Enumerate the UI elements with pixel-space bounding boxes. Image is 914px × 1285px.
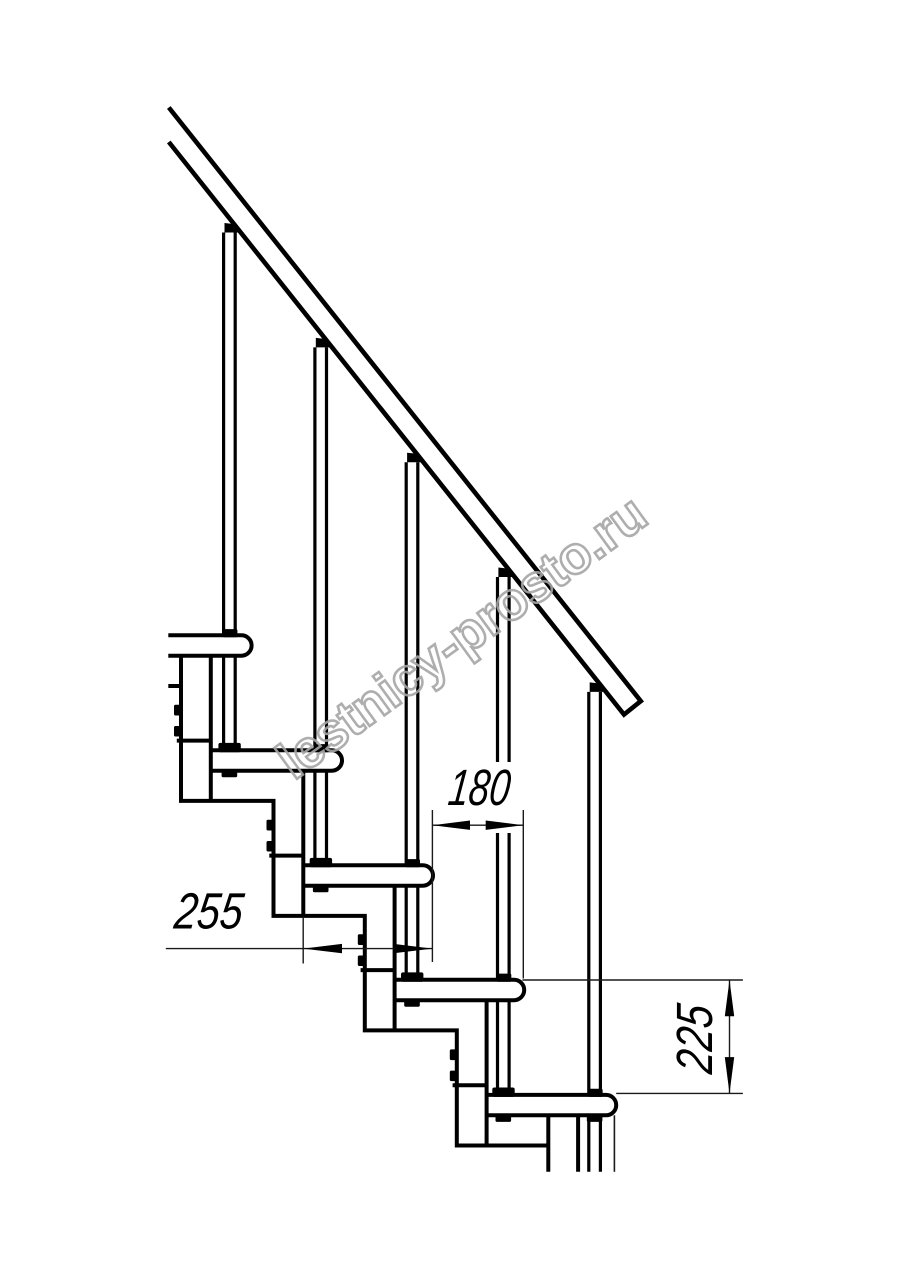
svg-text:255: 255 <box>171 882 247 939</box>
svg-text:180: 180 <box>445 760 513 816</box>
svg-text:225: 225 <box>666 1001 723 1077</box>
